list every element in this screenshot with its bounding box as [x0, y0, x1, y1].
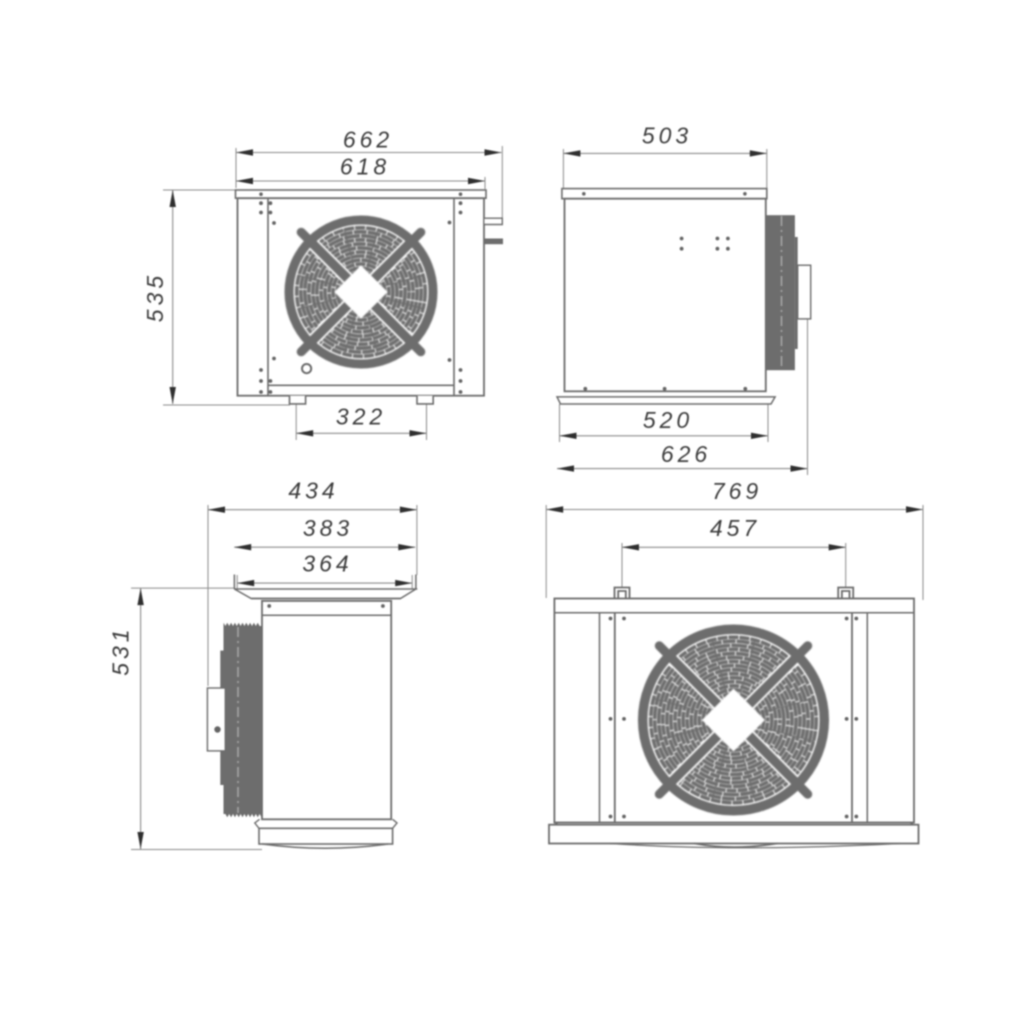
svg-text:662: 662	[343, 127, 393, 153]
svg-text:618: 618	[340, 154, 390, 180]
svg-text:322: 322	[336, 404, 386, 430]
svg-text:503: 503	[642, 123, 692, 149]
svg-text:535: 535	[142, 272, 168, 322]
svg-text:520: 520	[643, 407, 693, 433]
svg-text:434: 434	[288, 478, 338, 504]
svg-text:769: 769	[712, 478, 762, 504]
svg-text:457: 457	[710, 515, 760, 541]
svg-text:364: 364	[302, 551, 352, 577]
svg-text:383: 383	[303, 515, 353, 541]
svg-text:626: 626	[661, 441, 711, 467]
svg-text:531: 531	[108, 625, 134, 675]
